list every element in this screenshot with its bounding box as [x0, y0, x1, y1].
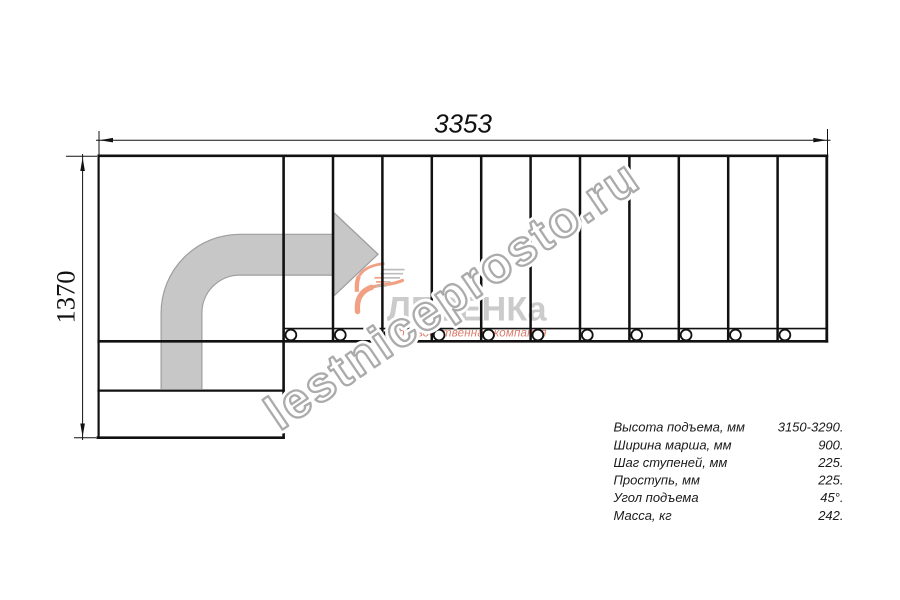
svg-text:900.: 900.	[818, 437, 843, 452]
svg-text:45°.: 45°.	[820, 490, 843, 505]
svg-text:1370: 1370	[51, 271, 81, 324]
svg-text:Угол подъема: Угол подъема	[613, 490, 699, 505]
svg-text:Ширина марша, мм: Ширина марша, мм	[614, 437, 732, 452]
svg-text:225.: 225.	[817, 455, 843, 470]
svg-text:Шаг ступеней, мм: Шаг ступеней, мм	[614, 455, 728, 470]
svg-text:3353: 3353	[434, 109, 492, 139]
svg-text:Высота подъема, мм: Высота подъема, мм	[614, 420, 745, 435]
svg-text:Масса, кг: Масса, кг	[614, 508, 673, 523]
svg-text:225.: 225.	[817, 473, 843, 488]
svg-text:3150-3290.: 3150-3290.	[778, 420, 844, 435]
svg-text:242.: 242.	[817, 508, 843, 523]
svg-text:Проступь, мм: Проступь, мм	[614, 473, 701, 488]
